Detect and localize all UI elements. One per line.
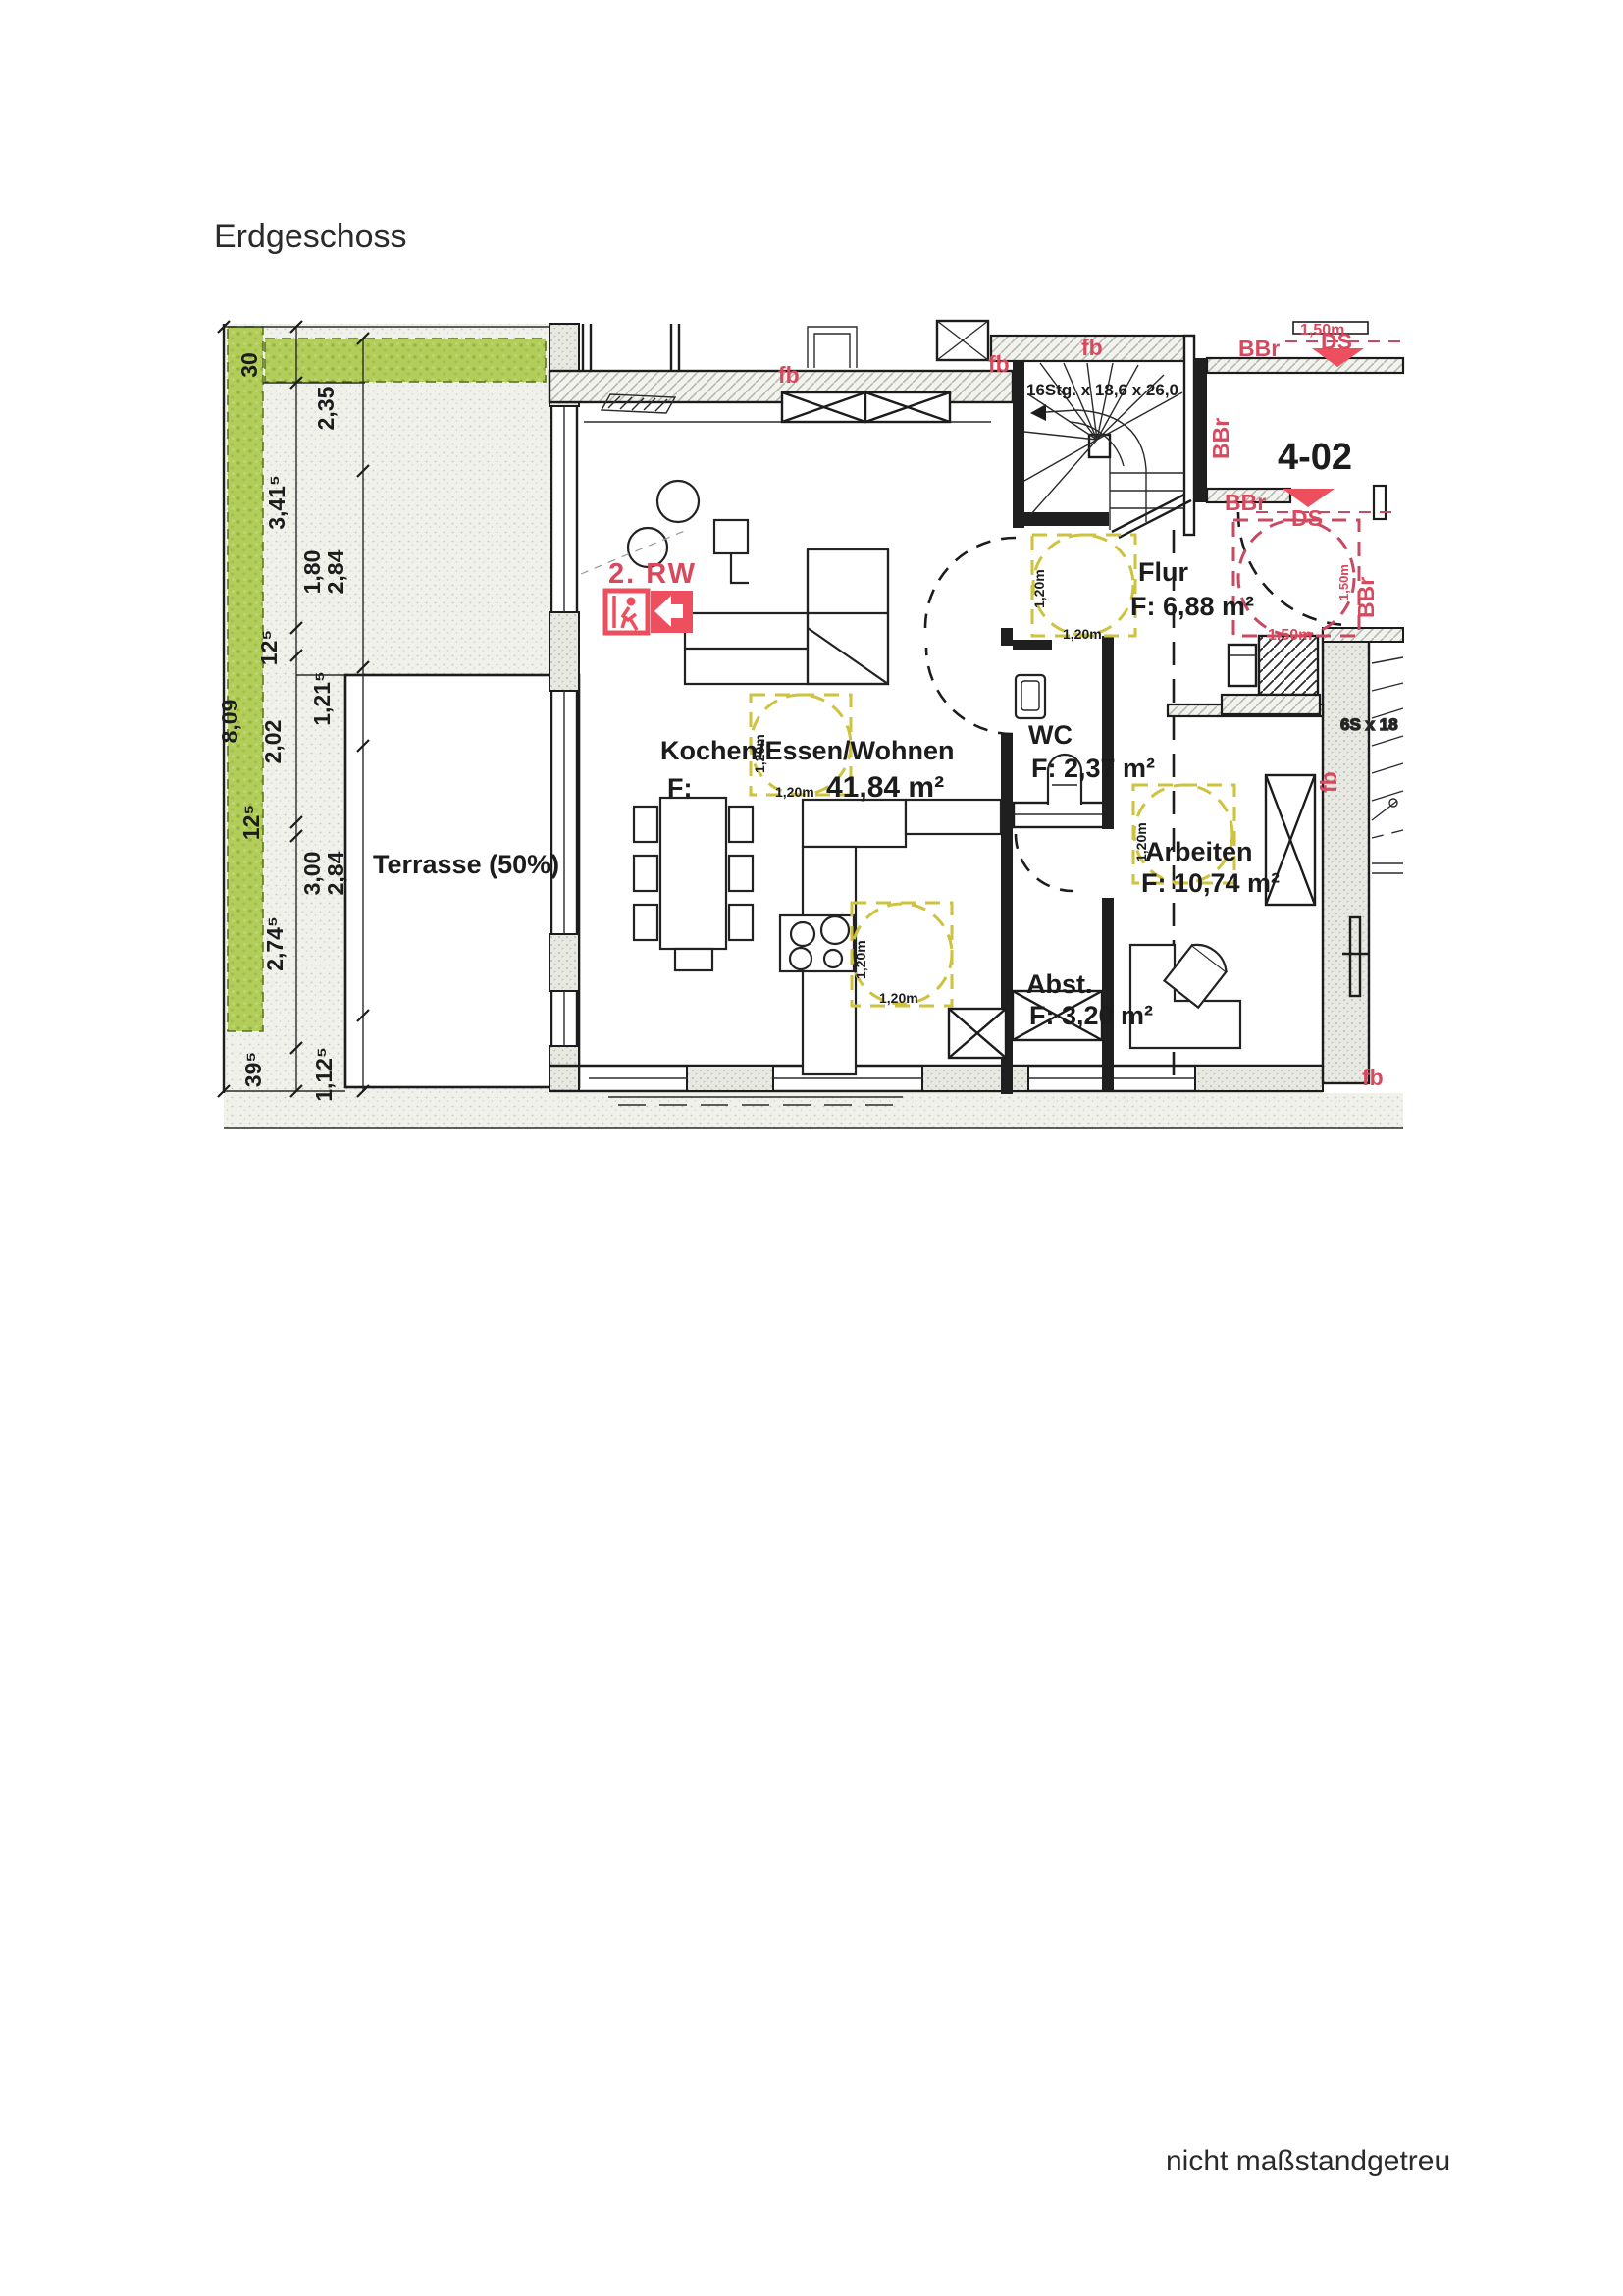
circle-dim: 1,20m — [1063, 626, 1102, 642]
wall-right — [1323, 630, 1369, 1083]
exit-arrow-icon — [651, 591, 693, 633]
dim-label: 3,00 — [299, 852, 325, 896]
circle-dim: 1,20m — [775, 784, 814, 800]
dim-label: 2,74⁵ — [262, 916, 288, 971]
dim-label: 30 — [236, 352, 262, 378]
side-table — [714, 520, 748, 553]
sofa — [685, 549, 888, 684]
room-name-wc: WC — [1028, 720, 1073, 750]
escape-route-label: 2. RW — [608, 558, 697, 590]
terrace-label: Terrasse (50%) — [373, 850, 559, 879]
meter-box — [1229, 645, 1256, 686]
room-name-abst: Abst. — [1026, 969, 1093, 999]
room-area-wc: F: 2,37 m² — [1031, 754, 1155, 783]
shaft-x-upper — [937, 321, 988, 360]
wall-pier — [550, 612, 579, 691]
bbr-label: BBr — [1208, 418, 1233, 459]
dim-label: 2,35 — [313, 386, 339, 430]
builtin-x-boxes — [782, 392, 950, 422]
footer-note: nicht maßstandgetreu — [1166, 2145, 1450, 2177]
room-area-abst: F: 3,20 m² — [1029, 1001, 1153, 1030]
fb-label: fb — [1081, 335, 1103, 360]
wall-right-top — [1323, 628, 1403, 642]
floor-lamp — [731, 553, 749, 583]
room-area-flur: F: 6,88 m² — [1130, 592, 1254, 621]
dim-label: 2,84 — [323, 549, 348, 594]
circle-dim: 1,20m — [853, 940, 868, 979]
hedge-top — [265, 339, 546, 382]
walkline-arrow — [1030, 404, 1046, 421]
circle-dim: 1,20m — [1031, 569, 1047, 608]
floor-plan-page: Erdgeschoss Terrasse (50%) — [0, 0, 1623, 2296]
room-area-arbeiten: F: 10,74 m² — [1141, 868, 1280, 898]
dim-label: 1,21⁵ — [309, 671, 335, 726]
shaft-hatched — [1259, 636, 1318, 695]
kitchen-shaft-x — [949, 1009, 1006, 1058]
door-swing-wc — [926, 648, 1013, 734]
dining-table — [660, 798, 726, 949]
main-stair-label: 16Stg. x 18,6 x 26,0 — [1026, 381, 1178, 399]
ds-label: DS — [1291, 505, 1323, 531]
bbr-label: BBr — [1238, 336, 1280, 361]
upper-door-frame — [808, 327, 857, 368]
fb-label: fb — [778, 362, 800, 388]
page-title: Erdgeschoss — [214, 218, 407, 255]
dim-label: 12⁵ — [256, 630, 282, 665]
circle-dim: 1,20m — [879, 990, 918, 1006]
circle-dim-large: 1,50m — [1336, 564, 1351, 600]
room-name-living: Kochen/Essen/Wohnen — [660, 736, 955, 765]
dim-label: 1,80 — [299, 550, 325, 595]
bbr-label: BBr — [1353, 577, 1379, 618]
desk — [1130, 938, 1240, 1048]
door-swing-abst — [1016, 834, 1073, 891]
fb-label: fb — [1362, 1065, 1384, 1090]
walkway-band — [224, 1093, 1403, 1128]
dim-label: 8,09 — [217, 700, 242, 744]
exit-sign-icon — [605, 591, 648, 633]
terrace — [345, 675, 579, 1087]
dim-label: 3,41⁵ — [264, 475, 289, 530]
dim-label: 12⁵ — [238, 805, 264, 840]
door-width-dim: 1,50m — [1300, 322, 1344, 339]
dim-label: 2,02 — [260, 720, 286, 764]
fb-label: fb — [1316, 771, 1341, 793]
round-table — [657, 481, 699, 522]
dim-label: 1,12⁵ — [311, 1047, 337, 1102]
wall-pier — [550, 934, 579, 991]
room-name-arbeiten: Arbeiten — [1145, 837, 1253, 866]
unit-number: 4-02 — [1278, 437, 1352, 478]
room-area-living: 41,84 m² — [826, 771, 944, 804]
room-area-prefix-living: F: — [667, 773, 692, 803]
bbr-label: BBr — [1225, 490, 1266, 515]
side-stair-label: 6S x 18 — [1340, 715, 1398, 734]
escape-route: 2. RW — [605, 558, 697, 633]
wall-pier — [1195, 1066, 1323, 1091]
stair-cut-line — [1112, 495, 1191, 538]
hedge-left — [228, 327, 263, 1031]
circle-dim-large: 1,50m — [1268, 627, 1312, 644]
wall-pier — [687, 1066, 773, 1091]
fb-label: fb — [988, 351, 1010, 377]
dim-label: 2,84 — [323, 851, 348, 895]
room-name-flur: Flur — [1138, 557, 1188, 587]
wall-pier — [550, 1046, 579, 1091]
dim-label: 39⁵ — [240, 1052, 266, 1087]
main-stairwell: 16Stg. x 18,6 x 26,0 — [991, 336, 1194, 538]
door-swing-flur — [925, 538, 1016, 628]
